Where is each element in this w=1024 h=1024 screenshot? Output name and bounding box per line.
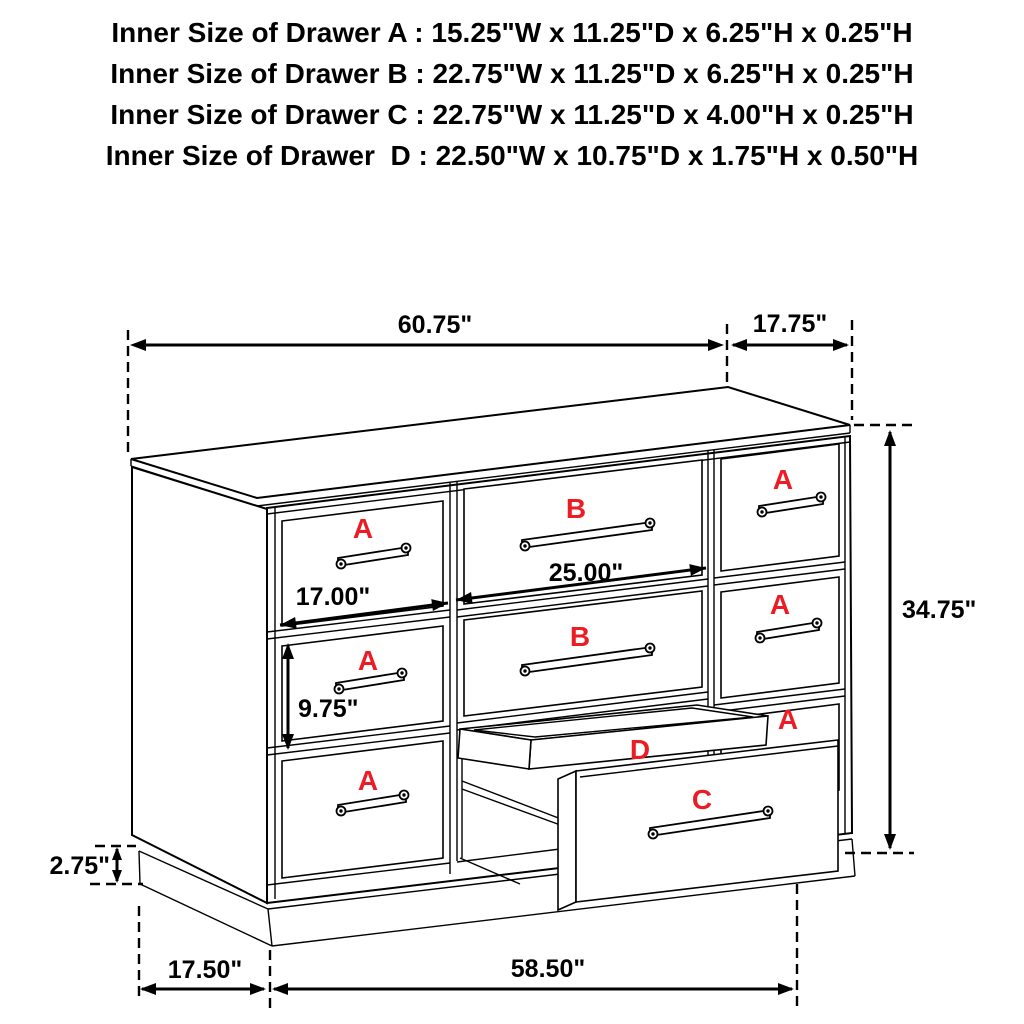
label-drawer-b1: B (566, 493, 586, 524)
dim-label-center-opening: 25.00" (549, 559, 623, 587)
label-drawer-a6: A (778, 704, 798, 735)
label-drawer-d: D (630, 734, 650, 765)
dim-label-left-opening: 17.00" (296, 583, 370, 611)
dim-top-width: 60.75" (130, 311, 724, 351)
dim-top-depth: 17.75" (731, 310, 849, 351)
dim-label-base-height: 2.75" (49, 852, 110, 880)
dim-label-base-width: 58.50" (511, 955, 585, 983)
side-panel (132, 467, 267, 903)
dresser-spec-sheet: Inner Size of Drawer A : 15.25"W x 11.25… (0, 0, 1024, 1024)
dim-label-base-depth: 17.50" (168, 956, 242, 984)
label-drawer-a4: A (773, 464, 793, 495)
dim-label-top-width: 60.75" (398, 311, 472, 339)
label-drawer-a5: A (770, 589, 790, 620)
label-drawer-a1: A (353, 513, 373, 544)
drawer-a3 (282, 741, 443, 878)
label-drawer-a3: A (358, 765, 378, 796)
dresser-dimension-diagram: A A A B B A A A D C (0, 0, 1024, 1024)
dim-overall-height: 34.75" (884, 430, 976, 850)
drawer-c-side (558, 771, 576, 910)
label-drawer-a2: A (358, 645, 378, 676)
label-drawer-c: C (692, 784, 712, 815)
dim-label-overall-height: 34.75" (902, 596, 976, 624)
dim-label-top-depth: 17.75" (753, 310, 827, 338)
dim-base-height: 2.75" (49, 847, 122, 883)
dim-label-lower-drawer-height: 9.75" (298, 695, 359, 723)
dim-base-depth: 17.50" (140, 956, 266, 995)
dim-base-width: 58.50" (272, 955, 794, 995)
drawer-a2 (282, 626, 443, 741)
label-drawer-b2: B (570, 621, 590, 652)
